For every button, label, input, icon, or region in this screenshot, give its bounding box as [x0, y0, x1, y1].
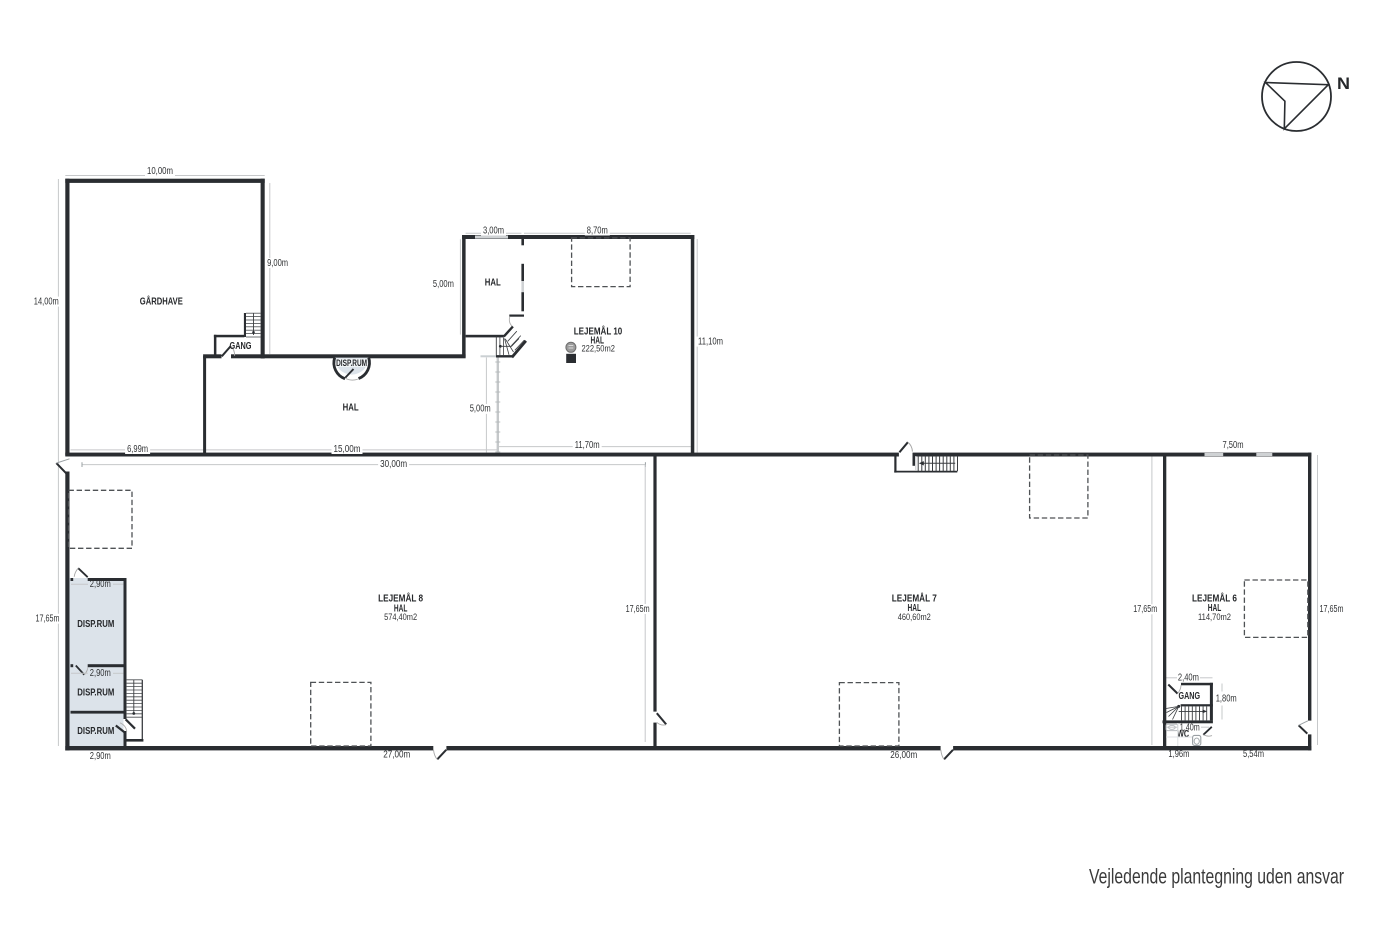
svg-text:14,00m: 14,00m [34, 296, 59, 307]
svg-text:17,65m: 17,65m [626, 604, 650, 615]
svg-text:5,00m: 5,00m [433, 279, 454, 290]
svg-text:DISP.RUM: DISP.RUM [77, 726, 114, 737]
svg-text:5,00m: 5,00m [470, 404, 491, 415]
svg-text:574,40m2: 574,40m2 [384, 612, 417, 623]
svg-text:GÅRDHAVE: GÅRDHAVE [140, 295, 183, 308]
svg-text:26,00m: 26,00m [890, 750, 917, 761]
svg-text:17,65m: 17,65m [36, 614, 60, 625]
svg-text:11,10m: 11,10m [698, 336, 723, 347]
svg-text:222,50m2: 222,50m2 [581, 344, 615, 355]
svg-text:10,00m: 10,00m [147, 166, 173, 177]
svg-text:2,90m: 2,90m [90, 579, 111, 590]
svg-text:5,54m: 5,54m [1243, 749, 1264, 760]
svg-text:Vejledende plantegning uden an: Vejledende plantegning uden ansvar [1089, 866, 1344, 889]
svg-text:GANG: GANG [230, 341, 252, 352]
svg-text:DISP.RUM: DISP.RUM [77, 688, 114, 699]
svg-text:N: N [1337, 74, 1350, 93]
svg-text:17,65m: 17,65m [1320, 604, 1344, 615]
svg-text:460,60m2: 460,60m2 [898, 612, 931, 623]
svg-text:2,90m: 2,90m [90, 751, 111, 762]
svg-text:HAL: HAL [485, 278, 501, 289]
svg-text:3,00m: 3,00m [483, 225, 504, 236]
svg-text:7,50m: 7,50m [1223, 440, 1244, 451]
svg-text:2,40m: 2,40m [1178, 672, 1199, 683]
svg-text:6,99m: 6,99m [127, 444, 148, 455]
svg-text:17,65m: 17,65m [1133, 604, 1157, 615]
svg-text:1,80m: 1,80m [1216, 693, 1237, 704]
svg-text:HAL: HAL [343, 402, 359, 413]
svg-text:8,70m: 8,70m [587, 225, 608, 236]
svg-text:WC: WC [1177, 729, 1189, 740]
svg-text:9,00m: 9,00m [267, 258, 288, 269]
svg-text:11,70m: 11,70m [575, 440, 600, 451]
svg-text:DISP.RUM: DISP.RUM [336, 358, 367, 368]
svg-text:30,00m: 30,00m [380, 459, 407, 470]
svg-text:114,70m2: 114,70m2 [1198, 612, 1231, 623]
svg-text:27,00m: 27,00m [383, 749, 410, 760]
svg-text:GANG: GANG [1179, 691, 1201, 702]
svg-text:15,00m: 15,00m [334, 444, 361, 455]
svg-text:2,90m: 2,90m [90, 668, 111, 679]
svg-text:DISP.RUM: DISP.RUM [77, 619, 114, 630]
svg-text:1,96m: 1,96m [1168, 749, 1189, 760]
